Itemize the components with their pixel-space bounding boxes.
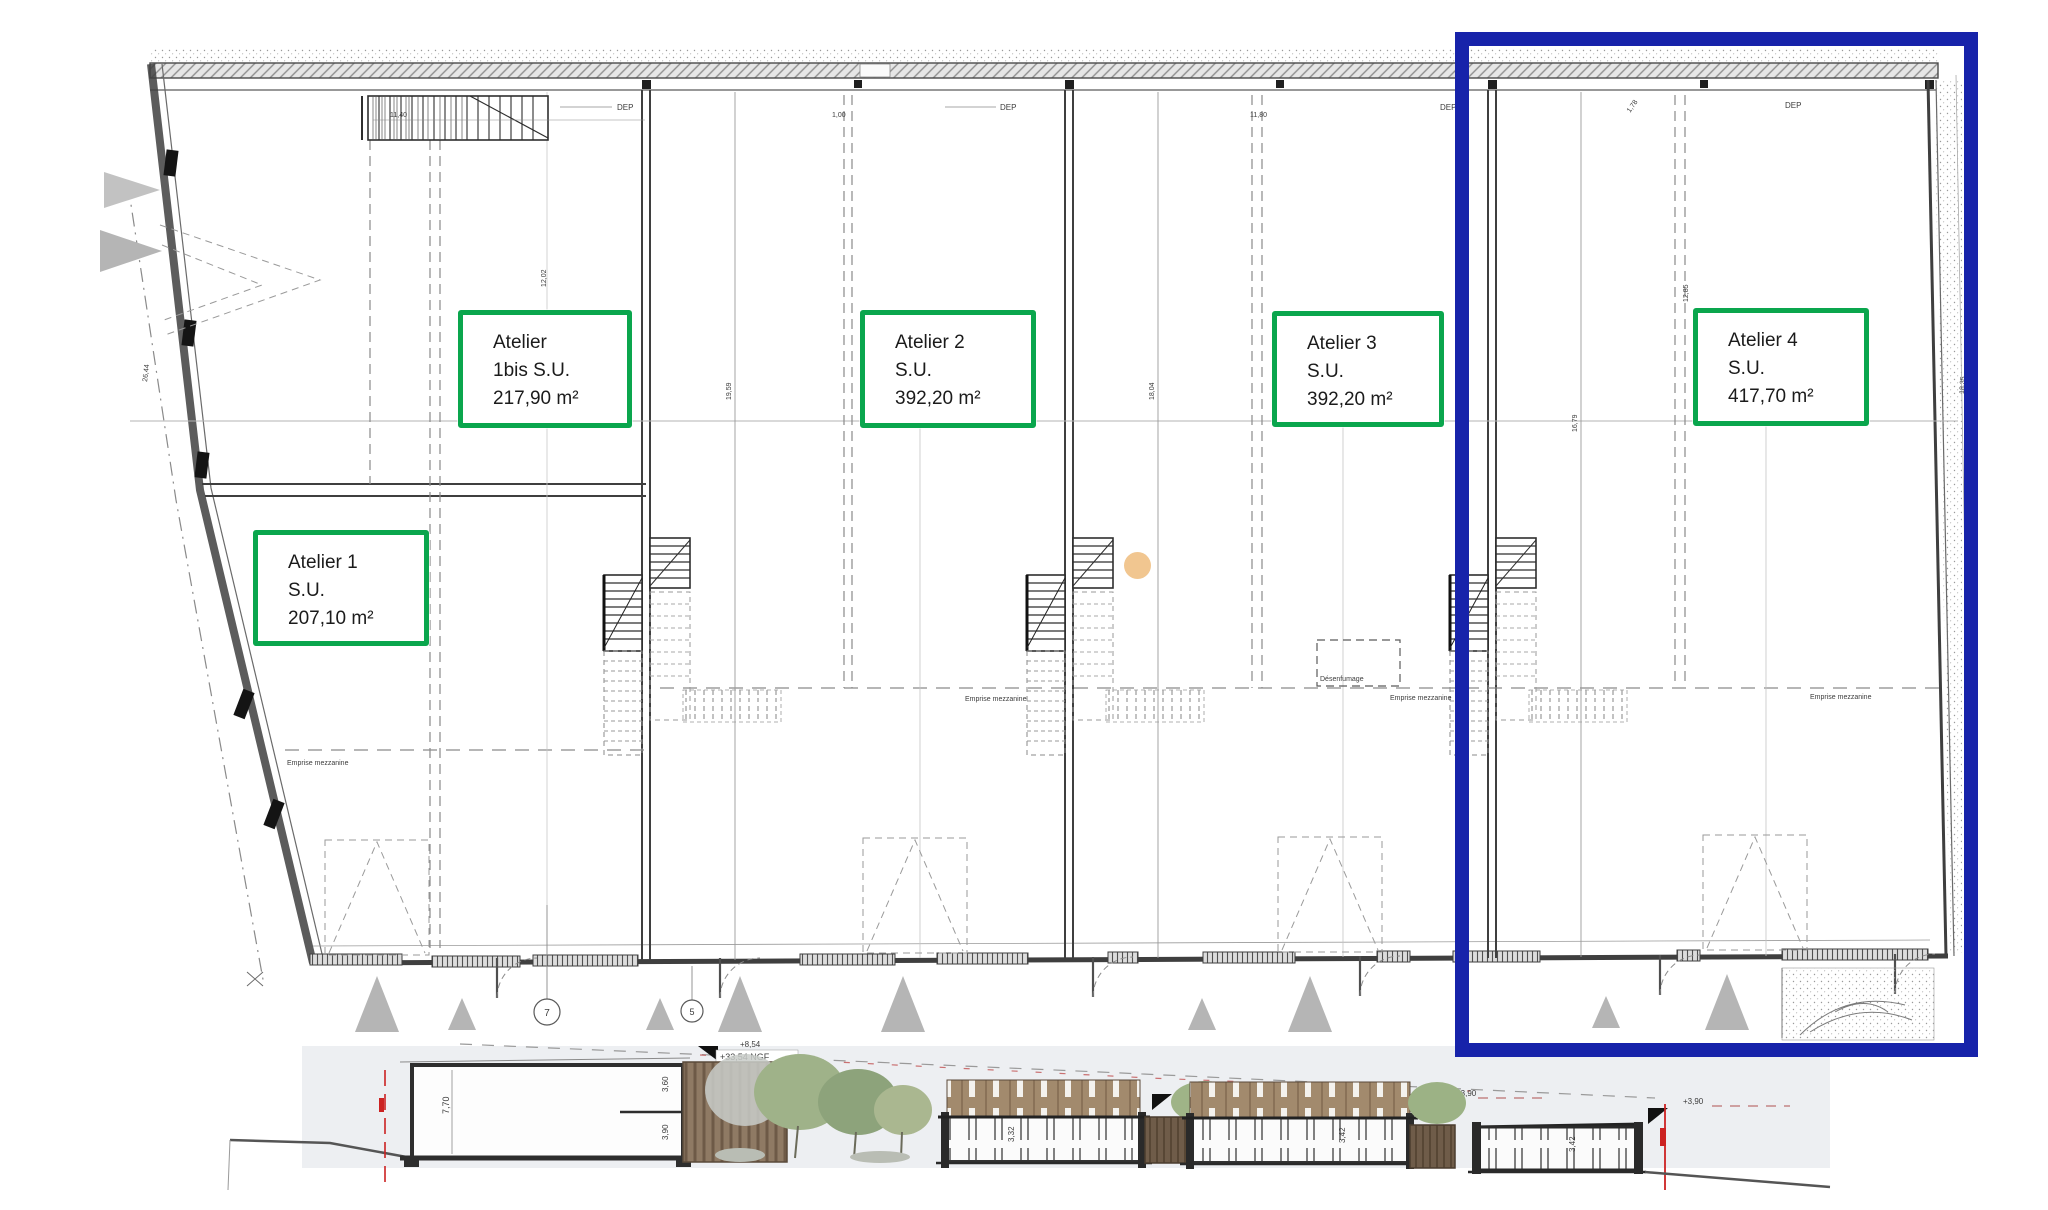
- dep-label: DEP: [1440, 103, 1456, 112]
- dep-label: DEP: [617, 103, 633, 112]
- axis-bubble-5: 5: [689, 1007, 694, 1017]
- dim-label: 11,40: [390, 112, 407, 119]
- dim-label: 3,32: [1007, 1126, 1016, 1142]
- unit-label-line: Atelier 2: [895, 329, 1025, 357]
- elevation-building-c: 3,42: [1468, 1122, 1646, 1174]
- dep-label: DEP: [1000, 103, 1016, 112]
- unit-label-line: Atelier 1: [288, 549, 418, 577]
- pointer-marker-dot: [1124, 552, 1151, 579]
- dim-label: 19,59: [726, 382, 733, 400]
- section-hall: 7,70 3,60 3,90: [400, 1058, 695, 1167]
- axis-bubble-7: 7: [544, 1008, 550, 1019]
- dim-label: 18,04: [1149, 382, 1156, 400]
- unit-label-atelier-2: Atelier 2 S.U. 392,20 m²: [860, 310, 1036, 428]
- elevation-building-b: 3,42: [1180, 1082, 1420, 1169]
- dim-label: 12,02: [541, 269, 548, 287]
- unit-label-area: 417,70 m²: [1728, 383, 1858, 411]
- dim-label: 11,80: [1250, 112, 1267, 119]
- dim-label: 3,42: [1338, 1127, 1347, 1143]
- unit-label-area: 207,10 m²: [288, 605, 418, 633]
- floor-plan-page: 7 5 DEP DEP DEP DEP Emprise mezzanine Em…: [0, 0, 2048, 1210]
- unit-label-line: S.U.: [1307, 358, 1433, 386]
- unit-label-area: 392,20 m²: [895, 385, 1025, 413]
- unit-label-line: Atelier 3: [1307, 330, 1433, 358]
- emprise-mezzanine-label: Emprise mezzanine: [965, 696, 1027, 703]
- desenfumage-label: Désenfumage: [1320, 676, 1364, 683]
- unit-label-line: S.U.: [288, 577, 418, 605]
- wall-pillars: [163, 149, 284, 829]
- elevation-building-a: 3,32: [936, 1080, 1152, 1168]
- dim-label: 3,90: [661, 1124, 670, 1140]
- dim-label: 26,44: [142, 364, 151, 382]
- building-section-elevation: 7,70 3,60 3,90 +8,54 +33,54 NGF: [228, 1040, 1830, 1190]
- level-label: +3,90: [1683, 1097, 1704, 1106]
- dim-label: 1,00: [832, 112, 846, 119]
- unit-label-line: S.U.: [1728, 355, 1858, 383]
- unit-label-atelier-1bis: Atelier 1bis S.U. 217,90 m²: [458, 310, 632, 428]
- selection-highlight-atelier-4: [1455, 32, 1978, 1057]
- dim-label: 3,42: [1568, 1136, 1577, 1152]
- unit-label-area: 392,20 m²: [1307, 386, 1433, 414]
- unit-label-area: 217,90 m²: [493, 385, 621, 413]
- unit-label-line: Atelier: [493, 329, 621, 357]
- level-label: +8,54: [740, 1040, 761, 1049]
- unit-label-atelier-4: Atelier 4 S.U. 417,70 m²: [1693, 308, 1869, 426]
- emprise-mezzanine-label: Emprise mezzanine: [1390, 695, 1452, 702]
- unit-label-line: Atelier 4: [1728, 327, 1858, 355]
- unit-label-atelier-3: Atelier 3 S.U. 392,20 m²: [1272, 311, 1444, 427]
- dim-label: 3,60: [661, 1076, 670, 1092]
- unit-label-line: S.U.: [895, 357, 1025, 385]
- unit-label-atelier-1: Atelier 1 S.U. 207,10 m²: [253, 530, 429, 646]
- emprise-mezzanine-label: Emprise mezzanine: [287, 760, 349, 767]
- dim-label: 7,70: [441, 1096, 451, 1114]
- unit-label-line: 1bis S.U.: [493, 357, 621, 385]
